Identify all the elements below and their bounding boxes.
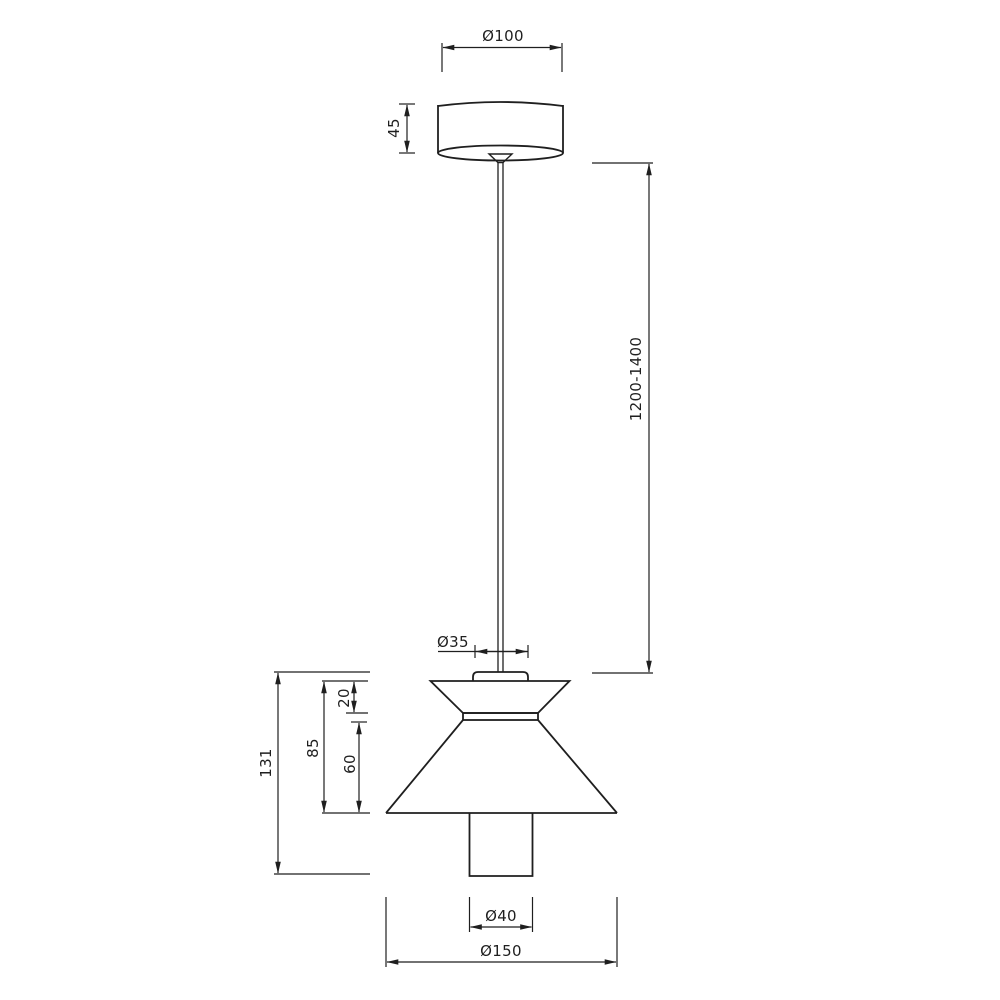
bottom-cylinder	[470, 813, 533, 876]
shade-top-connector	[473, 672, 528, 681]
canopy-top-edge	[438, 102, 563, 106]
dim-upper-cone-height: 20	[335, 682, 368, 713]
shade-diameter-label: Ø150	[480, 942, 522, 960]
dim-suspension-length: 1200-1400	[592, 163, 653, 673]
lamp-shade	[386, 681, 617, 813]
upper-cone-height-label: 20	[335, 688, 353, 708]
dim-connector-diameter: Ø35	[437, 633, 528, 658]
overall-body-height-label: 131	[257, 748, 275, 778]
cylinder-diameter-label: Ø40	[485, 907, 517, 925]
shade-band	[463, 713, 538, 720]
shade-upper-cone	[431, 681, 570, 713]
pendant-lamp-drawing: Ø100 45 1200-1400 Ø35	[0, 0, 1000, 1000]
shade-height-label: 85	[304, 738, 322, 758]
suspension-cord	[498, 163, 503, 673]
dim-canopy-diameter: Ø100	[442, 27, 562, 72]
lower-cone-height-label: 60	[341, 754, 359, 774]
dim-canopy-height: 45	[385, 104, 415, 153]
connector-diameter-label: Ø35	[437, 633, 469, 651]
shade-lower-cone	[386, 720, 617, 813]
canopy-height-label: 45	[385, 118, 403, 138]
ceiling-canopy	[438, 102, 563, 161]
dim-cylinder-diameter: Ø40	[470, 897, 533, 932]
dim-lower-cone-height: 60	[341, 722, 367, 812]
technical-drawing-page: Ø100 45 1200-1400 Ø35	[0, 0, 1000, 1000]
suspension-length-label: 1200-1400	[627, 337, 645, 421]
canopy-diameter-label: Ø100	[482, 27, 524, 45]
canopy-bottom-rim	[438, 146, 563, 161]
